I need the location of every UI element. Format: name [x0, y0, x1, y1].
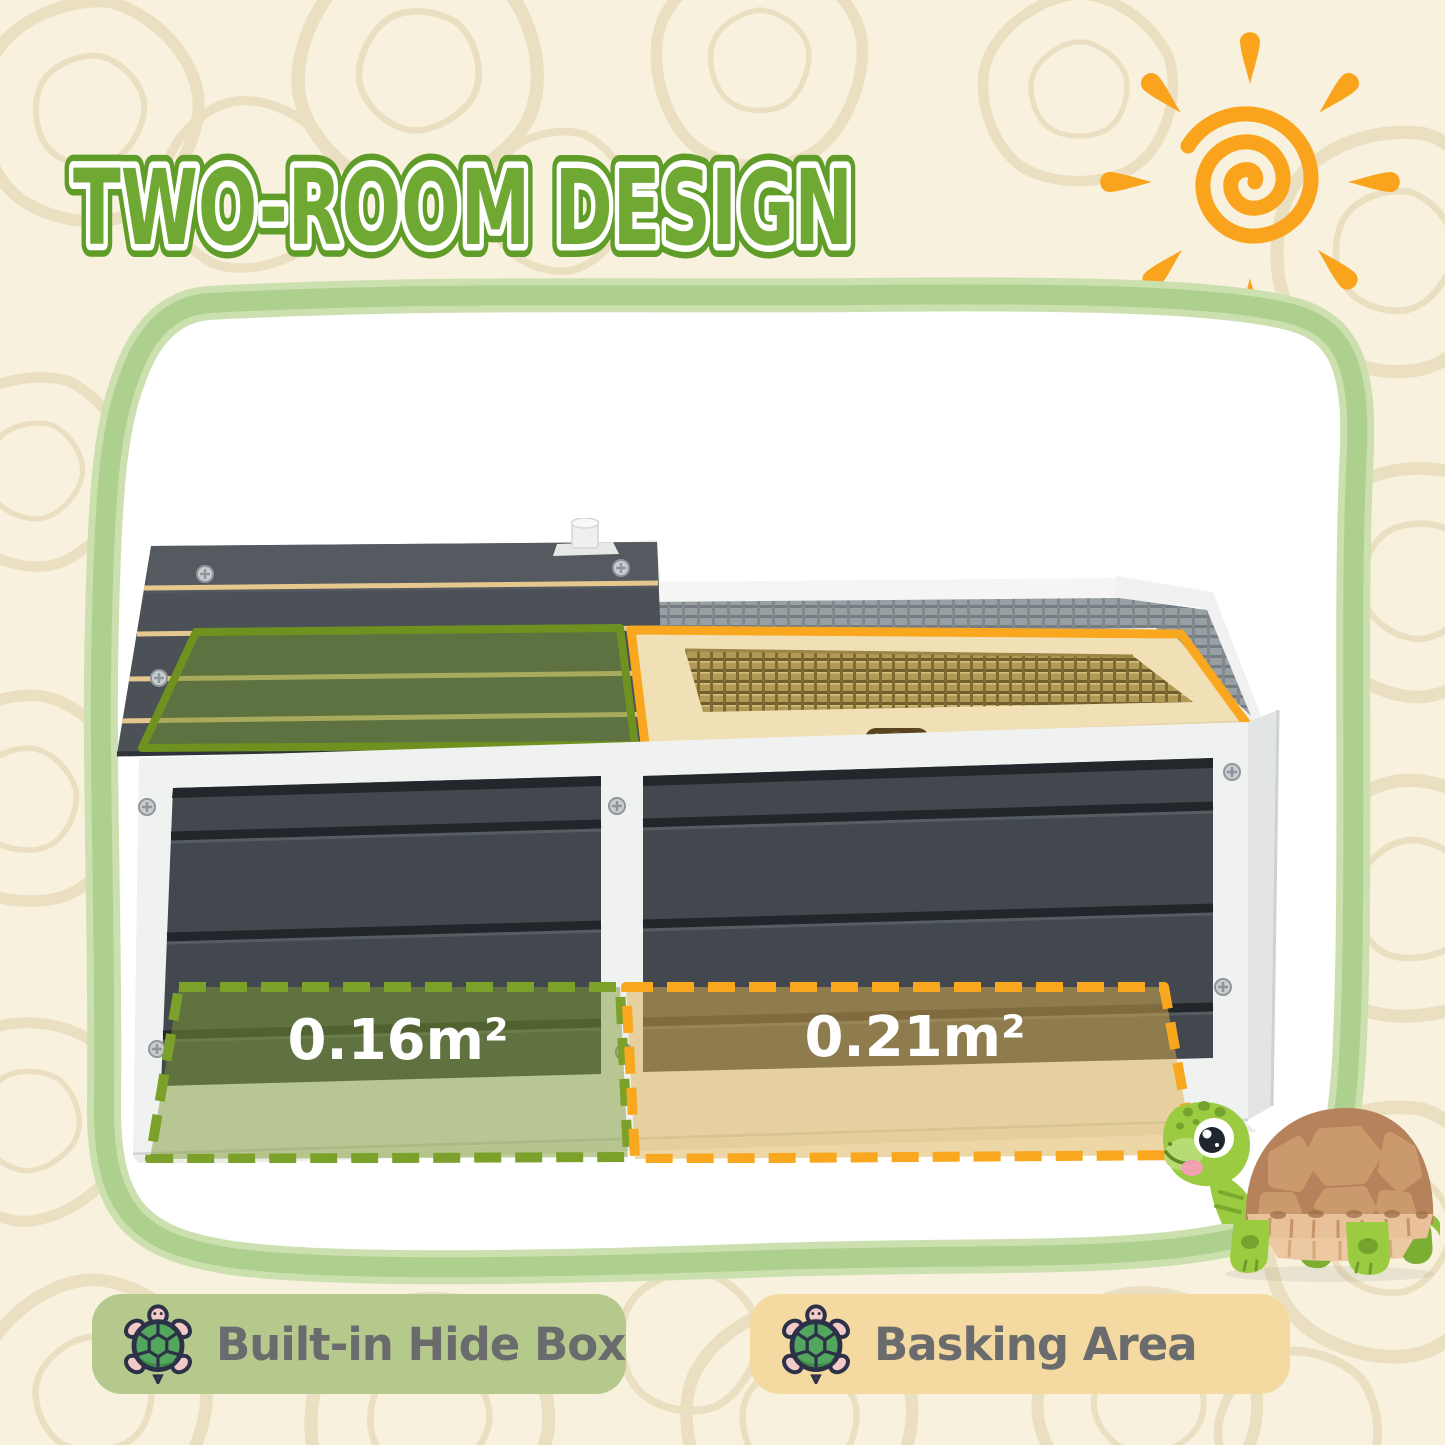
roof-vent-cap — [553, 518, 619, 556]
legend-item-basking: Basking Area — [750, 1294, 1290, 1394]
basking-area-label: 0.21m² — [804, 1005, 1025, 1070]
hutch-illustration: 0.16m² 0.21m² — [115, 518, 1285, 1163]
tortoise-head — [1161, 1101, 1250, 1186]
tortoise-shell — [1246, 1108, 1433, 1261]
legend-label-hide-box: Built-in Hide Box — [216, 1318, 625, 1371]
lid-mesh — [685, 650, 1193, 712]
turtle-icon — [118, 1304, 198, 1384]
hide-box-area-label: 0.16m² — [287, 1008, 508, 1073]
tortoise-cheek — [1181, 1160, 1203, 1176]
basking-area-overlay: 0.21m² — [626, 987, 1194, 1159]
legend-label-basking: Basking Area — [874, 1318, 1197, 1371]
tortoise-illustration — [1150, 1092, 1440, 1282]
turtle-icon — [776, 1304, 856, 1384]
legend-item-hide-box: Built-in Hide Box — [92, 1294, 626, 1394]
hide-box-roof-highlight — [142, 628, 635, 748]
page-root: { "title": "TWO-ROOM DESIGN", "hutch": {… — [0, 0, 1445, 1445]
hide-box-area-overlay: 0.16m² — [150, 987, 628, 1159]
